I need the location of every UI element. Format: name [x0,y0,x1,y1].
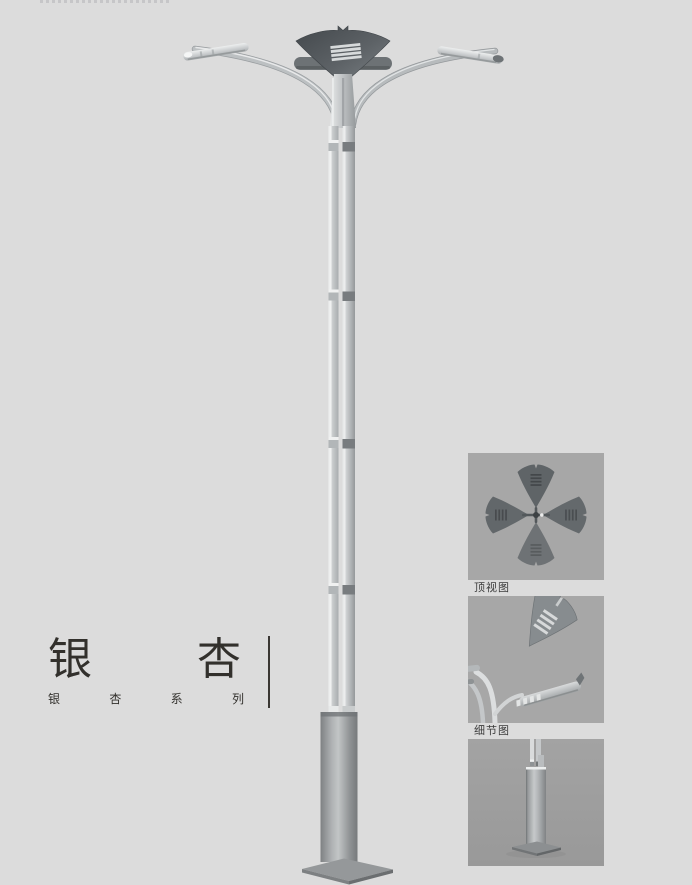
top-view-leaf-up [518,465,555,509]
product-title: 银 杏 [48,638,241,682]
figure-detail-view [468,596,604,723]
figure-base-view [468,739,604,866]
detail-leaf [509,596,583,660]
series-char-3: 系 [171,692,183,706]
base-view-column [526,767,546,847]
series-char-1: 银 [48,692,60,706]
detail-figures-column: 顶视图 [468,453,604,866]
lamp-detail-image [468,596,604,723]
top-view-hub [522,507,550,523]
base-column [321,706,358,862]
top-view-leaf-down [518,522,555,566]
product-title-char-1: 银 [48,638,92,682]
crown-stem [330,74,356,128]
product-title-char-2: 杏 [197,638,241,682]
product-series-subtitle: 银 杏 系 列 [48,692,244,706]
series-char-2: 杏 [109,692,121,706]
lamp-top-view-image [468,453,604,580]
lamp-base-image [468,739,604,866]
detail-arm-tubes [468,665,495,723]
figure-caption-top-view: 顶视图 [468,580,604,596]
figure-caption-detail-view: 细节图 [468,723,604,739]
figure-top-view [468,453,604,580]
series-char-4: 列 [232,692,244,706]
detail-lamp-head [495,672,587,714]
base-plate [302,859,393,885]
title-divider-line [268,636,270,708]
pole-twin-tubes [329,126,356,716]
catalog-page: 银 杏 银 杏 系 列 [0,0,692,885]
